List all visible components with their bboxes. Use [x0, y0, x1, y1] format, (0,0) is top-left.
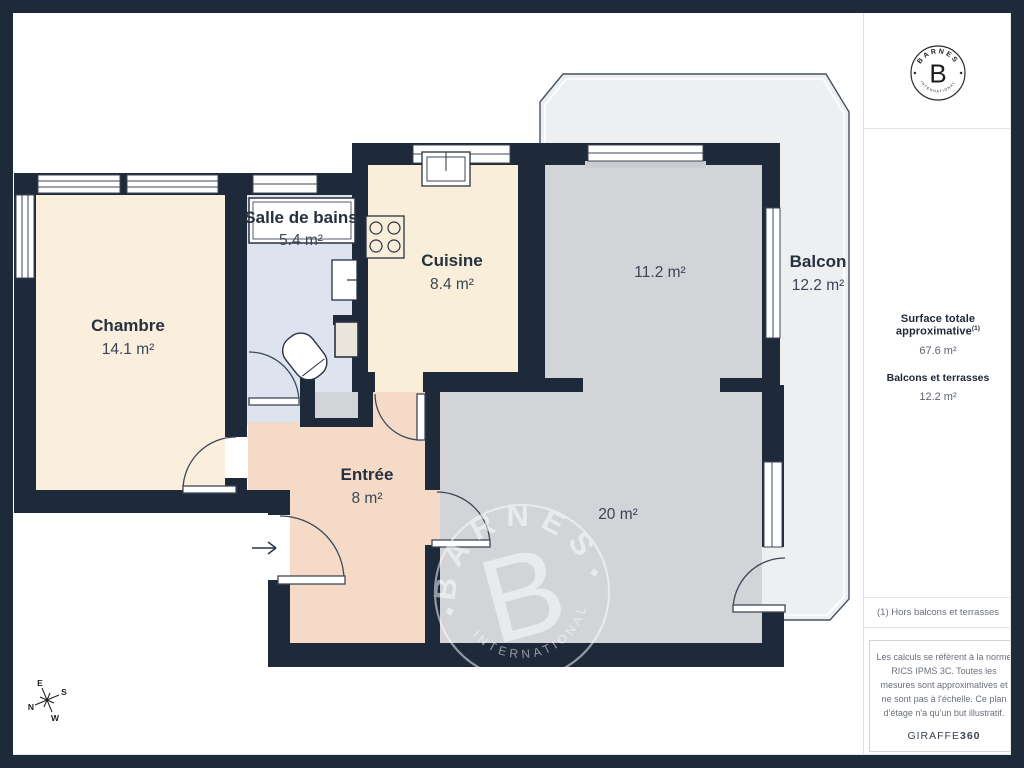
frame-top	[0, 0, 1024, 13]
sidebar: B BARNES INTERNATIONAL Surface totale ap…	[863, 13, 1012, 755]
stove	[366, 216, 404, 258]
area-balcon: 12.2 m²	[792, 277, 845, 294]
barnes-logo: B BARNES INTERNATIONAL	[864, 35, 1012, 116]
barnes-logo-stamp: B BARNES INTERNATIONAL	[900, 35, 976, 111]
provider-logo: GIRAFFE360	[876, 730, 1012, 742]
label-balcon: Balcon	[790, 252, 847, 271]
floorplan-page: Chambre 14.1 m² Salle de bains 5.4 m² Cu…	[0, 0, 1024, 768]
compass: E S N W	[28, 678, 67, 723]
label-entree: Entrée	[341, 465, 394, 484]
area-20m2: 20 m²	[598, 506, 638, 523]
compass-west: W	[51, 713, 60, 723]
area-chambre: 14.1 m²	[102, 341, 155, 358]
provider-suffix: 360	[960, 730, 981, 742]
provider-name: GIRAFFE	[907, 730, 960, 742]
window-11m2-right	[766, 208, 780, 338]
compass-south: S	[61, 687, 67, 697]
washing-machine	[335, 322, 358, 357]
surface-total-title: Surface totale approximative(1)	[864, 313, 1012, 338]
surface-summary: Surface totale approximative(1) 67.6 m² …	[864, 313, 1012, 403]
window-chambre-top-2	[127, 175, 218, 193]
window-chambre-left	[16, 195, 34, 278]
label-salle-de-bains: Salle de bains	[244, 208, 357, 227]
bathroom-sink	[332, 260, 357, 300]
area-cuisine: 8.4 m²	[430, 276, 474, 293]
kitchen-doorway-floor	[375, 372, 423, 392]
window-bathroom-top	[253, 175, 317, 193]
footnote-marker: (1)	[972, 325, 980, 332]
window-11m2-top	[585, 145, 706, 168]
balconies-label: Balcons et terrasses	[864, 372, 1012, 384]
area-11m2: 11.2 m²	[634, 264, 685, 281]
compass-north: N	[28, 702, 34, 712]
compass-east: E	[37, 678, 43, 688]
passage-11-20	[583, 378, 720, 392]
window-chambre-top-1	[38, 175, 120, 193]
frame-left	[0, 0, 13, 768]
label-chambre: Chambre	[91, 316, 165, 335]
sidebar-divider	[864, 128, 1012, 129]
kitchen-sink	[422, 152, 470, 186]
disclaimer-text: Les calculs se réfèrent à la norme RICS …	[876, 651, 1012, 721]
area-entree: 8 m²	[352, 490, 383, 507]
label-cuisine: Cuisine	[421, 251, 482, 270]
balconies-value: 12.2 m²	[864, 391, 1012, 403]
surface-total-value: 67.6 m²	[864, 345, 1012, 357]
window-20m2-right	[764, 462, 782, 547]
disclaimer-box: Les calculs se réfèrent à la norme RICS …	[869, 640, 1019, 752]
area-salle-de-bains: 5.4 m²	[279, 232, 323, 249]
logo-initial: B	[929, 59, 946, 89]
frame-bottom	[0, 755, 1024, 768]
frame-right	[1011, 0, 1024, 768]
footnote: (1) Hors balcons et terrasses	[864, 597, 1012, 628]
